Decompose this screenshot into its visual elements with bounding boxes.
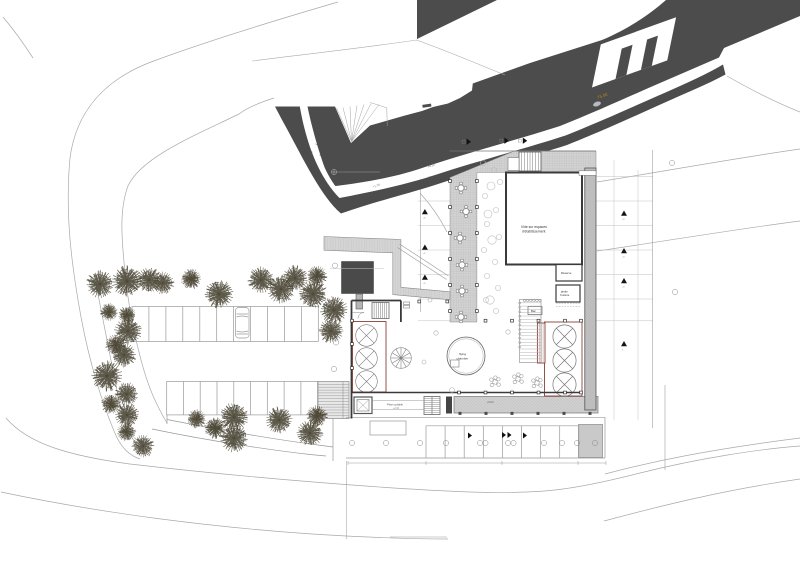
svg-text:+8: +8: [622, 219, 625, 221]
svg-text:7: 7: [622, 350, 624, 352]
svg-text:d'établissement: d'établissement: [522, 230, 546, 234]
svg-text:flying: flying: [459, 352, 466, 356]
svg-text:Cuisine: Cuisine: [560, 293, 570, 297]
svg-text:+9.00: +9.00: [487, 400, 494, 404]
svg-text:+8: +8: [622, 257, 625, 259]
svg-text:+8: +8: [423, 283, 426, 285]
svg-text:Piste cyclable: Piste cyclable: [387, 403, 403, 407]
svg-text:Réserve: Réserve: [561, 271, 572, 275]
svg-text:+8: +8: [423, 218, 426, 220]
svg-text:Vide sur espaces: Vide sur espaces: [521, 225, 547, 229]
svg-text:+8: +8: [622, 287, 625, 289]
svg-text:+8: +8: [423, 253, 426, 255]
